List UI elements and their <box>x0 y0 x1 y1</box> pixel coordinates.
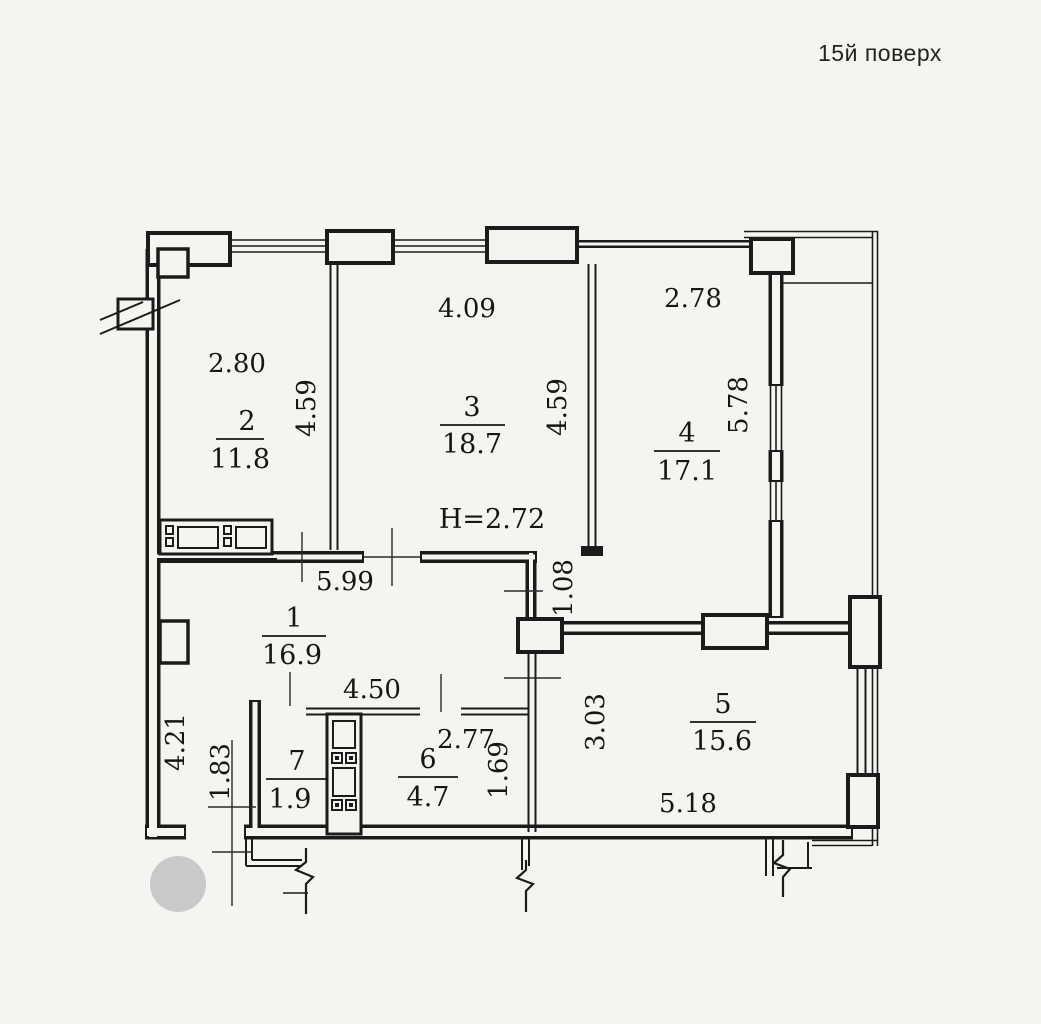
room-3-number: 3 <box>463 392 480 423</box>
dim-room3-width: 4.09 <box>438 294 496 324</box>
break-symbols <box>296 840 790 914</box>
room-6-area: 4.7 <box>407 782 450 813</box>
kitchen-counter-icon <box>157 520 277 559</box>
pier-room5-right-bottom <box>848 775 878 827</box>
dim-room2-height: 4.59 <box>292 379 322 437</box>
room-7-area: 1.9 <box>269 784 312 815</box>
dim-room1-height: 4.21 <box>161 713 191 771</box>
column-top-3 <box>487 228 577 262</box>
dim-entry-width: 1.83 <box>206 743 236 801</box>
dim-room5-height: 3.03 <box>581 693 611 751</box>
room-4-area: 17.1 <box>657 456 717 487</box>
dim-bath-block-width: 4.50 <box>343 675 401 705</box>
dim-room6-height: 1.69 <box>484 741 514 799</box>
flue-vent-icon <box>100 299 180 334</box>
dim-room4-width: 2.78 <box>664 284 722 314</box>
column-room5-top <box>703 615 767 648</box>
column-corner <box>158 249 188 277</box>
room-5-number: 5 <box>714 689 731 720</box>
sink-icon <box>178 527 218 548</box>
room-1-number: 1 <box>285 603 302 634</box>
dim-room2-width: 2.80 <box>208 349 266 379</box>
left-wall-niche <box>160 621 188 663</box>
room-6-number: 6 <box>419 744 436 775</box>
room-1-area: 16.9 <box>262 640 322 671</box>
room-7-number: 7 <box>288 746 305 777</box>
dim-hall-nook: 1.08 <box>549 559 579 617</box>
room-4-number: 4 <box>678 418 695 449</box>
watermark-circle <box>150 856 206 912</box>
room-2-number: 2 <box>238 406 255 437</box>
pier-room5-right-top <box>850 597 880 667</box>
floor-plan-drawing: 2.80 4.09 2.78 4.59 4.59 5.78 5.99 1.08 … <box>0 0 1041 1024</box>
room-2-area: 11.8 <box>210 444 270 475</box>
column-top-2 <box>327 231 393 263</box>
stove-knob-icon <box>166 526 173 534</box>
room-3-area: 18.7 <box>442 429 502 460</box>
stove-icon <box>236 527 266 548</box>
dim-room5-width: 5.18 <box>659 789 717 819</box>
ceiling-height-label: Н=2.72 <box>439 504 545 535</box>
vent-shaft-icon <box>327 714 361 834</box>
dim-room3-height: 4.59 <box>543 378 573 436</box>
column-top-4 <box>751 239 793 273</box>
break-symbol-vestibule <box>517 860 533 912</box>
room-5-area: 15.6 <box>692 726 752 757</box>
break-symbol-entry <box>296 848 313 914</box>
dim-room1-width: 5.99 <box>316 567 374 597</box>
floor-plan-page: 15й поверх <box>0 0 1041 1024</box>
dim-room4-height: 5.78 <box>724 376 754 434</box>
column-hall <box>518 619 562 652</box>
